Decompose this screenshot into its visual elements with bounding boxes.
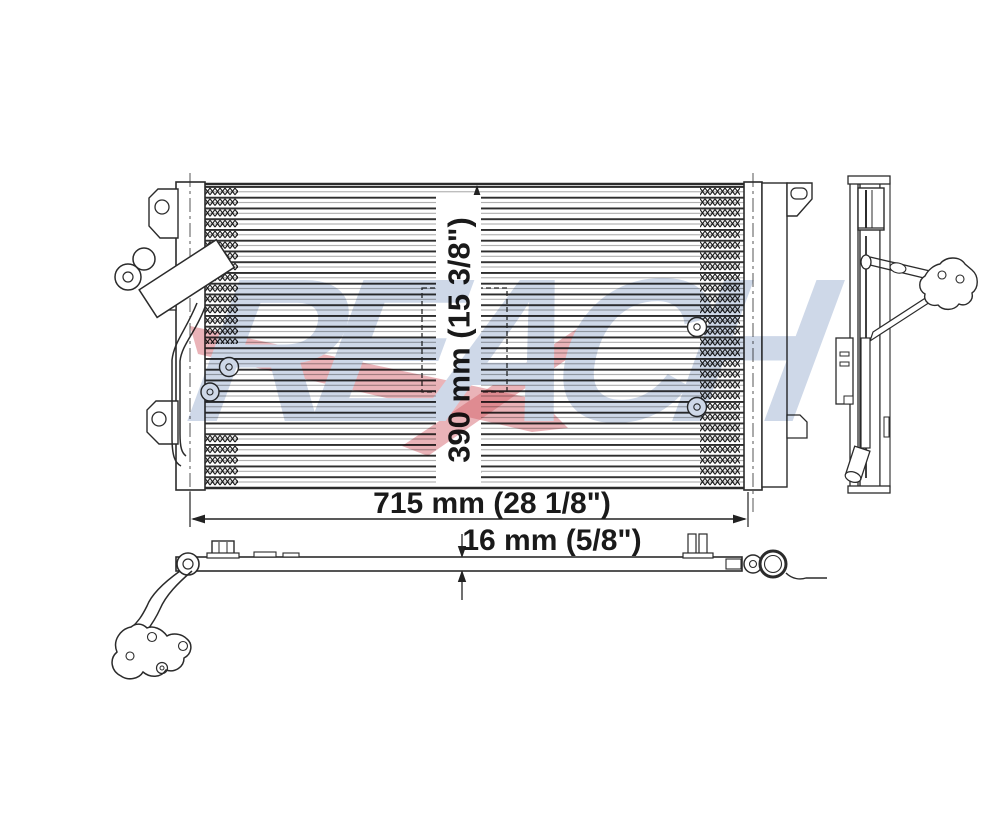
side-view-bottom-cap: [848, 486, 890, 493]
fitting-port-lower: [115, 264, 141, 290]
top-view-right-bracket: [683, 534, 713, 558]
top-view-left-line-assembly: [112, 571, 192, 679]
side-view-rear-tab: [884, 417, 889, 437]
side-view-top-block: [858, 188, 884, 230]
left-bracket-bottom: [147, 401, 178, 444]
fin-strip-right: [700, 186, 740, 487]
right-bracket-plate: [762, 183, 787, 487]
top-view-body: [176, 557, 742, 571]
top-view-nut-flange: [207, 553, 239, 558]
dimension-depth-label: 16 mm (5/8"): [462, 526, 641, 556]
top-view-tail-line: [786, 573, 827, 579]
side-view-front-plate: [850, 180, 858, 490]
dimension-height-label: 390 mm (15 3/8"): [442, 211, 477, 469]
top-view-clip-b: [283, 553, 299, 557]
top-view-clip-a: [254, 552, 276, 557]
dimension-width-label: 715 mm (28 1/8"): [373, 489, 611, 519]
side-view-top-cap: [848, 176, 890, 184]
right-bracket-bottom-tab: [787, 415, 807, 438]
diagram-page: 390 mm (15 3/8") 715 mm (28 1/8") 16 mm …: [0, 0, 1002, 831]
side-view-fitting-block: [920, 258, 978, 309]
condenser-diagram: [0, 0, 1002, 831]
side-view: [836, 176, 977, 493]
side-view-shelf: [836, 338, 853, 404]
top-view-oring: [760, 551, 786, 577]
